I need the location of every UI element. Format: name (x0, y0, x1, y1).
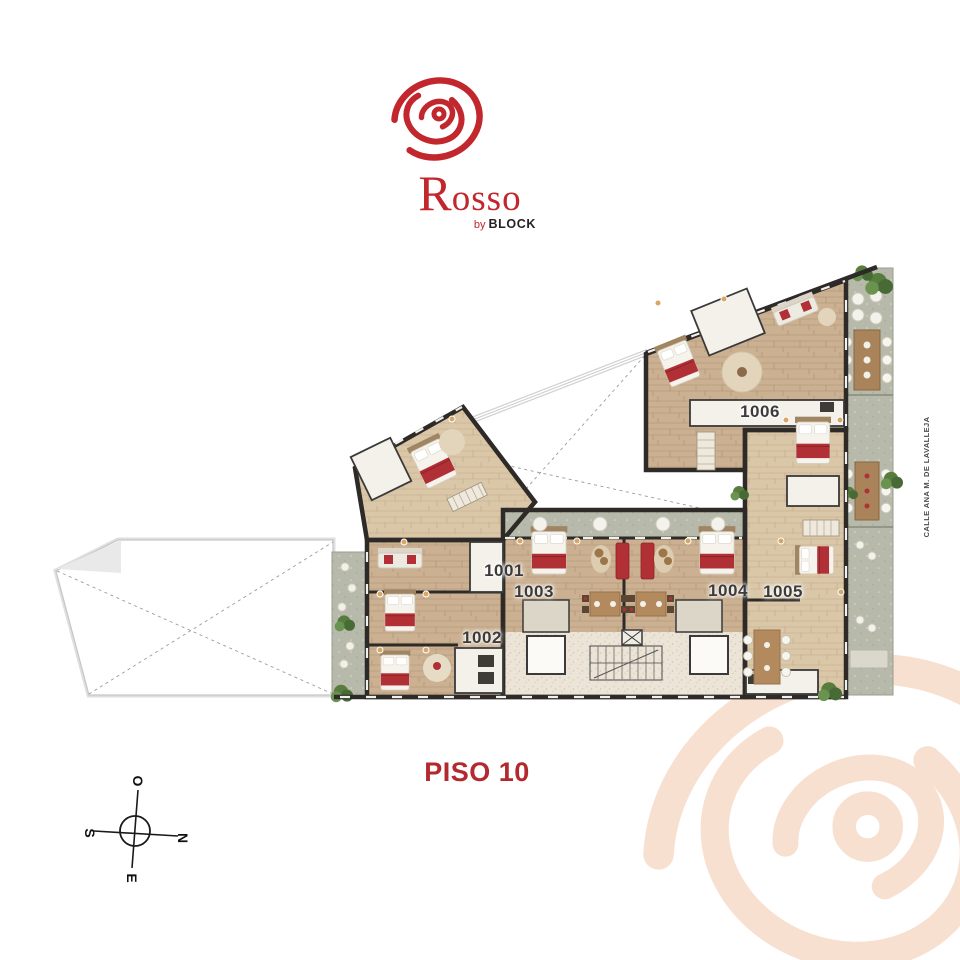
byline-by: by (474, 219, 486, 231)
unit-label-1001: 1001 (484, 561, 524, 581)
unit-label-1006: 1006 (740, 402, 780, 422)
bathroom (676, 600, 722, 632)
compass-letter-n: N (175, 833, 191, 843)
kitchen-1002 (455, 648, 503, 693)
lobby (690, 636, 728, 674)
logo: Rosso by BLOCK (388, 76, 552, 231)
floor-title: PISO 10 (377, 757, 577, 788)
brand-name: Rosso (388, 168, 552, 218)
unit-label-1003: 1003 (514, 582, 554, 602)
bathroom (787, 476, 839, 506)
logo-rose-svg (388, 76, 492, 172)
street-label: CALLE ANA M. DE LAVALLEJA (922, 397, 934, 557)
compass: O S N E (80, 765, 196, 895)
page: { "brand": { "initial": "R", "rest": "os… (0, 0, 960, 960)
bathroom (523, 600, 569, 632)
terrace-sofa (850, 650, 888, 668)
terrace-left (331, 552, 367, 702)
brand-initial: R (418, 165, 451, 221)
brand-rest: osso (452, 178, 522, 219)
compass-letter-o: O (130, 776, 146, 787)
void-roof-area (56, 540, 333, 695)
brand-byline: by BLOCK (388, 217, 552, 231)
compass-letter-s: S (82, 828, 98, 837)
dining-set (744, 630, 791, 684)
compass-letter-e: E (124, 873, 140, 882)
terrace-dining-table (842, 330, 892, 390)
unit-label-1005: 1005 (763, 582, 803, 602)
unit-label-1004: 1004 (708, 581, 748, 601)
terrace-right (841, 265, 903, 695)
lobby (527, 636, 565, 674)
unit-label-1002: 1002 (462, 628, 502, 648)
byline-block: BLOCK (489, 217, 536, 231)
